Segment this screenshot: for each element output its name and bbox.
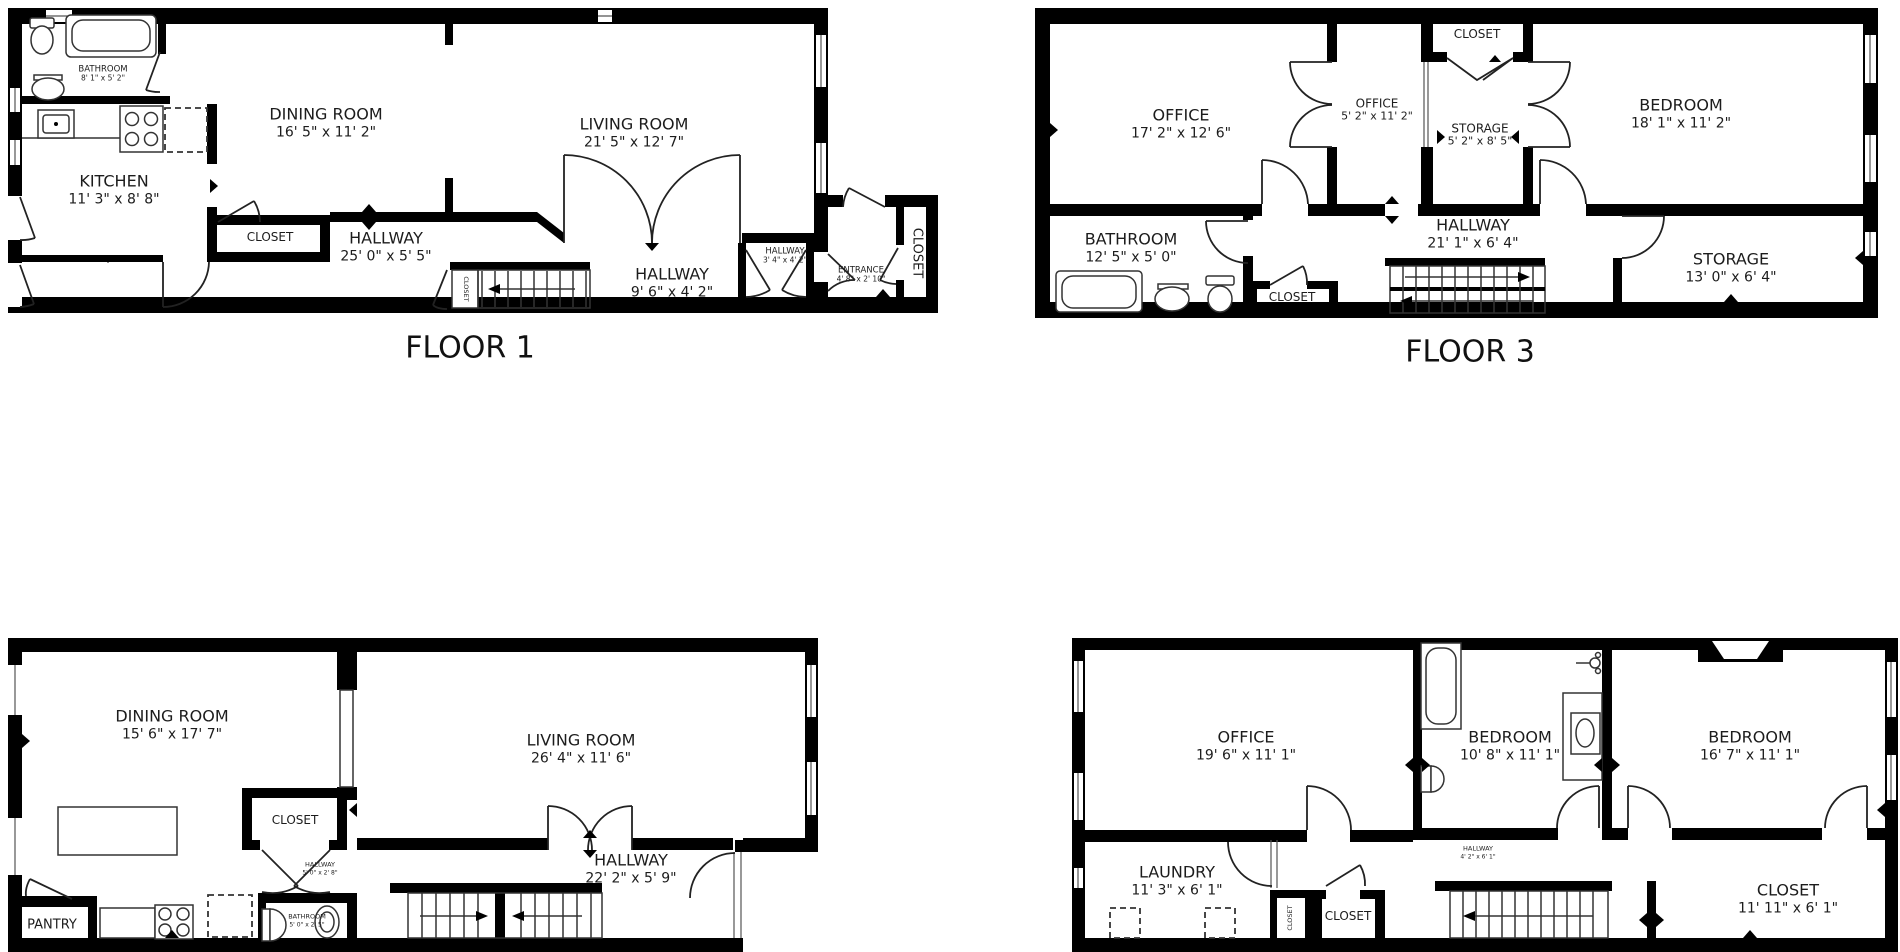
floor4-stairs [1450, 891, 1608, 938]
sink-icon [1155, 284, 1189, 311]
room-label-f1-dining-room: DINING ROOM 16' 5" x 11' 2" [269, 105, 382, 140]
floorplan-drawing [0, 0, 1900, 952]
kitchen-island [58, 807, 177, 855]
room-label-f2-hallway: HALLWAY 22' 2" x 5' 9" [585, 851, 676, 886]
floor1-kitchen-fixtures [22, 106, 207, 152]
floor-1-label: FLOOR 1 [405, 331, 535, 366]
floor1-bathroom-fixtures [30, 15, 156, 100]
refrigerator-icon [165, 108, 207, 152]
toilet-icon [1206, 276, 1234, 312]
room-label-f1-living-room: LIVING ROOM 21' 5" x 12' 7" [580, 115, 689, 150]
room-label-f4-bedroom-2: BEDROOM 16' 7" x 11' 1" [1700, 728, 1800, 763]
room-label-f3-hallway: HALLWAY 21' 1" x 6' 4" [1427, 216, 1518, 251]
room-label-f4-closet-2: CLOSET [1325, 909, 1372, 923]
room-label-f1-closet: CLOSET [247, 230, 294, 244]
room-label-f3-hall-closet: CLOSET [1269, 290, 1316, 304]
room-label-f1-entry-closet: CLOSET [909, 228, 924, 279]
room-label-f4-office: OFFICE 19' 6" x 11' 1" [1196, 728, 1296, 763]
room-label-f4-closet-small: CLOSET [1287, 905, 1295, 930]
washer-icon [1110, 908, 1140, 938]
counter [100, 908, 155, 938]
room-label-f4-bedroom: BEDROOM 10' 8" x 11' 1" [1460, 728, 1560, 763]
bathtub-icon [66, 15, 156, 57]
room-label-f2-hallway-small: HALLWAY 5' 0" x 2' 8" [302, 862, 337, 877]
bathtub-icon [1421, 643, 1461, 729]
room-label-f4-closet: CLOSET 11' 11" x 6' 1" [1738, 881, 1838, 916]
room-label-f4-laundry: LAUNDRY 11' 3" x 6' 1" [1131, 863, 1222, 898]
room-label-f1-entrance: ENTRANCE 4' 8" x 2' 10" [837, 266, 886, 285]
room-label-f1-hallway: HALLWAY 25' 0" x 5' 5" [340, 229, 431, 264]
dryer-icon [1205, 908, 1235, 938]
room-label-f2-bathroom: BATHROOM 5' 0" x 2' 5" [288, 914, 326, 929]
floor2-walls [8, 638, 818, 952]
kitchen-sink-icon [38, 110, 74, 138]
room-label-f3-storage-2: STORAGE 13' 0" x 6' 4" [1685, 250, 1776, 285]
room-label-f3-office: OFFICE 17' 2" x 12' 6" [1131, 106, 1231, 141]
sink-icon [262, 909, 286, 941]
floor-3-label: FLOOR 3 [1405, 335, 1535, 370]
bathtub-icon [1056, 271, 1142, 312]
room-label-f3-office-2: OFFICE 5' 2" x 11' 2" [1341, 96, 1413, 123]
room-label-f1-hallway-2: HALLWAY 9' 6" x 4' 2" [631, 265, 713, 300]
room-label-f1-kitchen: KITCHEN 11' 3" x 8' 8" [68, 172, 159, 207]
room-label-f3-closet: CLOSET [1454, 27, 1501, 41]
sink-icon [1421, 766, 1444, 792]
room-label-f2-closet: CLOSET [272, 813, 319, 827]
room-label-f4-hallway: HALLWAY 4' 2" x 6' 1" [1460, 846, 1495, 861]
faucet-icon [1576, 653, 1601, 674]
room-label-f3-storage: STORAGE 5' 2" x 8' 5" [1448, 121, 1513, 148]
room-label-f2-living-room: LIVING ROOM 26' 4" x 11' 6" [527, 731, 636, 766]
flue-channel [340, 690, 353, 787]
room-label-f3-bathroom: BATHROOM 12' 5" x 5' 0" [1085, 230, 1178, 265]
room-label-f2-pantry: PANTRY [27, 917, 77, 932]
toilet-icon [30, 18, 54, 54]
room-label-f1-hallway-3: HALLWAY 3' 4" x 4' 2" [762, 247, 808, 266]
room-label-f2-dining-room: DINING ROOM 15' 6" x 17' 7" [115, 707, 228, 742]
floorplan-canvas: BATHROOM 8' 1" x 5' 2" KITCHEN 11' 3" x … [0, 0, 1900, 952]
vanity-sink-icon [1563, 693, 1602, 780]
room-label-f3-bedroom: BEDROOM 18' 1" x 11' 2" [1631, 96, 1731, 131]
room-label-f1-stair-closet: CLOSET [461, 276, 469, 301]
refrigerator-icon [208, 895, 252, 937]
sink-icon [32, 75, 64, 100]
room-label-f1-bathroom: BATHROOM 8' 1" x 5' 2" [78, 65, 127, 84]
stove-icon [120, 106, 163, 152]
